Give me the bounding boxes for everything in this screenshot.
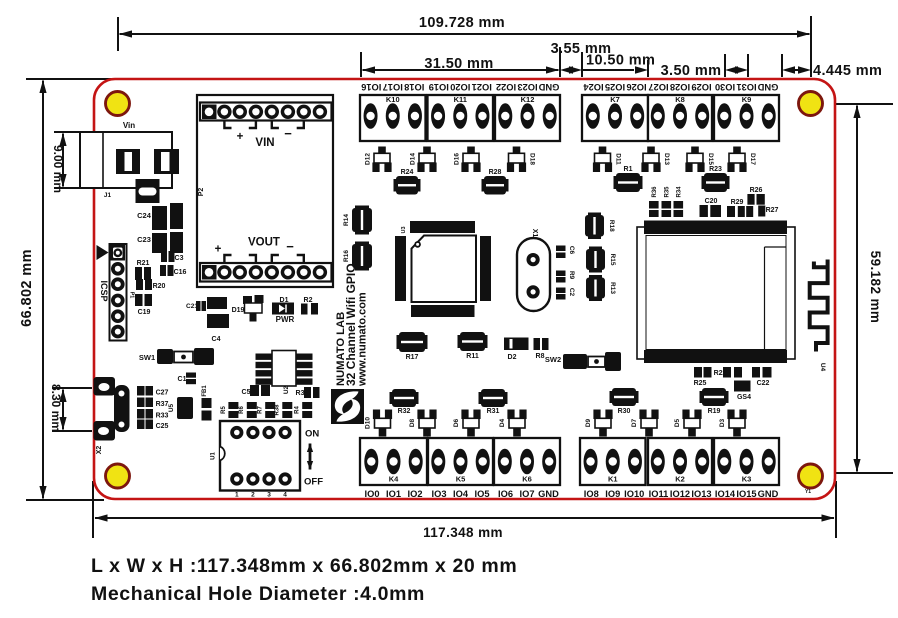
svg-text:R23: R23 bbox=[709, 166, 722, 173]
svg-text:IO6: IO6 bbox=[498, 489, 513, 499]
svg-text:IO27: IO27 bbox=[648, 82, 668, 92]
svg-text:K5: K5 bbox=[456, 475, 466, 484]
svg-text:IO11: IO11 bbox=[649, 489, 669, 499]
svg-text:66.802 mm: 66.802 mm bbox=[19, 249, 35, 327]
svg-text:VOUT: VOUT bbox=[248, 237, 280, 249]
svg-text:R34: R34 bbox=[677, 186, 683, 198]
svg-text:P2: P2 bbox=[198, 188, 205, 197]
svg-text:FB1: FB1 bbox=[202, 385, 208, 397]
svg-text:R18: R18 bbox=[608, 220, 615, 232]
svg-text:R33: R33 bbox=[156, 413, 169, 420]
svg-text:U5: U5 bbox=[168, 403, 175, 412]
svg-text:IO29: IO29 bbox=[691, 82, 711, 92]
svg-text:R37: R37 bbox=[156, 401, 169, 408]
svg-text:R8: R8 bbox=[536, 353, 545, 360]
svg-text:D5: D5 bbox=[674, 418, 681, 427]
svg-text:D2: D2 bbox=[508, 354, 517, 361]
svg-text:GND: GND bbox=[757, 82, 778, 92]
svg-text:C4: C4 bbox=[212, 336, 221, 343]
svg-text:R36: R36 bbox=[652, 186, 658, 198]
svg-text:IO2: IO2 bbox=[408, 489, 423, 499]
svg-text:R20: R20 bbox=[153, 283, 166, 290]
svg-text:IO24: IO24 bbox=[583, 82, 604, 92]
svg-text:GND: GND bbox=[538, 489, 559, 499]
svg-text:117.348 mm: 117.348 mm bbox=[423, 525, 503, 540]
svg-text:C5: C5 bbox=[242, 389, 251, 396]
svg-text:R25: R25 bbox=[694, 380, 707, 387]
svg-text:SW2: SW2 bbox=[545, 355, 561, 364]
svg-text:9.00 mm: 9.00 mm bbox=[51, 145, 65, 193]
svg-text:IO18: IO18 bbox=[404, 82, 424, 92]
svg-text:+: + bbox=[215, 244, 222, 256]
svg-text:109.728 mm: 109.728 mm bbox=[419, 15, 505, 31]
svg-text:R38: R38 bbox=[275, 404, 281, 416]
svg-text:C22: C22 bbox=[757, 380, 770, 387]
svg-text:D19: D19 bbox=[232, 307, 245, 314]
svg-text:IO10: IO10 bbox=[624, 489, 644, 499]
svg-text:R28: R28 bbox=[489, 169, 502, 176]
svg-text:C24: C24 bbox=[137, 211, 152, 220]
svg-text:R32: R32 bbox=[398, 408, 411, 415]
svg-text:IO13: IO13 bbox=[691, 489, 711, 499]
svg-text:IO19: IO19 bbox=[429, 82, 449, 92]
svg-text:SW1: SW1 bbox=[139, 353, 155, 362]
svg-text:K9: K9 bbox=[742, 95, 752, 104]
svg-text:R26: R26 bbox=[750, 187, 763, 194]
svg-text:R3: R3 bbox=[296, 390, 305, 397]
svg-text:U4: U4 bbox=[819, 363, 826, 372]
svg-text:R4: R4 bbox=[295, 406, 301, 414]
svg-text:3: 3 bbox=[267, 492, 271, 499]
svg-text:K8: K8 bbox=[675, 95, 685, 104]
svg-text:8.30 mm: 8.30 mm bbox=[49, 384, 63, 432]
svg-text:Mechanical Hole Diameter :4.0m: Mechanical Hole Diameter :4.0mm bbox=[91, 583, 425, 605]
svg-text:K2: K2 bbox=[675, 475, 685, 484]
svg-text:D6: D6 bbox=[453, 418, 460, 427]
svg-text:R14: R14 bbox=[343, 214, 350, 226]
svg-text:IO23: IO23 bbox=[517, 82, 537, 92]
svg-text:IO26: IO26 bbox=[626, 82, 646, 92]
svg-text:IO14: IO14 bbox=[715, 489, 736, 499]
svg-text:D4: D4 bbox=[499, 418, 506, 427]
svg-text:IO22: IO22 bbox=[496, 82, 516, 92]
svg-text:R13: R13 bbox=[609, 282, 616, 294]
svg-text:1: 1 bbox=[235, 492, 239, 499]
svg-text:3.50 mm: 3.50 mm bbox=[661, 63, 722, 79]
svg-text:2: 2 bbox=[251, 492, 255, 499]
svg-text:R1: R1 bbox=[624, 166, 633, 173]
svg-text:ICSP: ICSP bbox=[99, 280, 109, 301]
svg-text:IO17: IO17 bbox=[383, 82, 403, 92]
svg-text:R15: R15 bbox=[609, 254, 616, 266]
svg-text:C6: C6 bbox=[568, 246, 575, 255]
svg-text:ON: ON bbox=[305, 429, 319, 440]
svg-text:IO21: IO21 bbox=[472, 82, 492, 92]
svg-text:J1: J1 bbox=[104, 192, 112, 199]
svg-text:K11: K11 bbox=[454, 95, 467, 104]
svg-text:K4: K4 bbox=[389, 475, 399, 484]
svg-text:K10: K10 bbox=[386, 95, 400, 104]
svg-text:C1: C1 bbox=[178, 376, 187, 383]
svg-text:IO8: IO8 bbox=[584, 489, 599, 499]
svg-text:IO28: IO28 bbox=[670, 82, 690, 92]
svg-text:IO0: IO0 bbox=[365, 489, 380, 499]
svg-text:D10: D10 bbox=[365, 417, 372, 429]
svg-text:R5: R5 bbox=[221, 406, 227, 414]
svg-text:C23: C23 bbox=[137, 235, 151, 244]
svg-text:+: + bbox=[237, 131, 244, 143]
svg-text:K1: K1 bbox=[608, 475, 618, 484]
svg-text:OFF: OFF bbox=[304, 477, 323, 488]
svg-text:−: − bbox=[286, 239, 294, 254]
svg-text:D18: D18 bbox=[529, 153, 536, 165]
svg-text:IO9: IO9 bbox=[605, 489, 620, 499]
svg-text:R27: R27 bbox=[766, 207, 779, 214]
svg-text:C2: C2 bbox=[568, 288, 575, 297]
svg-text:R31: R31 bbox=[487, 408, 500, 415]
svg-text:X1: X1 bbox=[531, 229, 538, 238]
svg-text:IO16: IO16 bbox=[361, 82, 381, 92]
svg-text:Vin: Vin bbox=[123, 121, 135, 130]
svg-text:IO15: IO15 bbox=[736, 489, 756, 499]
svg-text:D14: D14 bbox=[410, 153, 417, 165]
svg-text:GND: GND bbox=[538, 82, 559, 92]
svg-text:R21: R21 bbox=[137, 260, 150, 267]
svg-text:U1: U1 bbox=[211, 452, 217, 460]
svg-text:R6: R6 bbox=[239, 406, 245, 414]
svg-text:D17: D17 bbox=[749, 153, 756, 165]
svg-text:C20: C20 bbox=[705, 198, 718, 205]
svg-text:IO30: IO30 bbox=[715, 82, 735, 92]
svg-text:4.445 mm: 4.445 mm bbox=[813, 63, 882, 79]
svg-text:U3: U3 bbox=[401, 226, 407, 233]
svg-text:C3: C3 bbox=[175, 255, 184, 262]
svg-text:D12: D12 bbox=[365, 153, 372, 165]
svg-text:C25: C25 bbox=[156, 423, 169, 430]
svg-text:R9: R9 bbox=[568, 271, 575, 280]
svg-text:K7: K7 bbox=[610, 95, 620, 104]
svg-text:Y1: Y1 bbox=[805, 489, 811, 495]
svg-text:D9: D9 bbox=[585, 418, 592, 427]
svg-text:R7: R7 bbox=[258, 406, 264, 414]
svg-text:www.numato.com: www.numato.com bbox=[357, 292, 369, 387]
svg-text:R11: R11 bbox=[466, 353, 479, 360]
svg-text:R2: R2 bbox=[304, 297, 313, 304]
svg-text:L x W x H :117.348mm x 66.802m: L x W x H :117.348mm x 66.802mm x 20 mm bbox=[91, 555, 517, 577]
svg-text:K3: K3 bbox=[742, 475, 752, 484]
svg-text:GS4: GS4 bbox=[737, 394, 751, 401]
svg-text:U2: U2 bbox=[283, 385, 290, 394]
svg-text:R17: R17 bbox=[406, 354, 419, 361]
svg-text:R16: R16 bbox=[343, 250, 350, 262]
svg-text:C27: C27 bbox=[156, 390, 169, 397]
svg-text:GND: GND bbox=[758, 489, 779, 499]
svg-text:VIN: VIN bbox=[255, 137, 274, 149]
svg-text:IO12: IO12 bbox=[670, 489, 690, 499]
svg-text:D11: D11 bbox=[615, 153, 622, 165]
svg-text:R35: R35 bbox=[665, 186, 671, 198]
svg-text:K12: K12 bbox=[521, 95, 535, 104]
svg-text:IO1: IO1 bbox=[386, 489, 401, 499]
svg-text:10.50 mm: 10.50 mm bbox=[586, 53, 655, 69]
svg-text:D7: D7 bbox=[631, 418, 638, 427]
svg-text:K6: K6 bbox=[522, 475, 532, 484]
svg-text:D13: D13 bbox=[663, 153, 670, 165]
svg-text:59.182 mm: 59.182 mm bbox=[868, 251, 883, 324]
svg-text:4: 4 bbox=[283, 492, 287, 499]
svg-text:D16: D16 bbox=[454, 153, 461, 165]
svg-text:IO31: IO31 bbox=[736, 82, 756, 92]
svg-text:PWR: PWR bbox=[276, 315, 295, 324]
svg-text:R19: R19 bbox=[708, 408, 721, 415]
svg-text:C16: C16 bbox=[174, 269, 187, 276]
svg-text:R24: R24 bbox=[401, 169, 414, 176]
svg-text:X2: X2 bbox=[96, 446, 103, 455]
svg-text:D8: D8 bbox=[409, 418, 416, 427]
svg-text:R22: R22 bbox=[714, 370, 727, 377]
svg-text:R30: R30 bbox=[618, 408, 631, 415]
svg-text:−: − bbox=[284, 126, 292, 141]
svg-text:IO5: IO5 bbox=[475, 489, 490, 499]
svg-text:IO25: IO25 bbox=[605, 82, 625, 92]
svg-text:R29: R29 bbox=[731, 199, 744, 206]
svg-text:D3: D3 bbox=[719, 418, 726, 427]
svg-text:D15: D15 bbox=[707, 153, 714, 165]
svg-text:IO3: IO3 bbox=[432, 489, 447, 499]
svg-text:C19: C19 bbox=[138, 309, 151, 316]
svg-text:31.50 mm: 31.50 mm bbox=[424, 56, 493, 72]
svg-text:IO4: IO4 bbox=[453, 489, 469, 499]
svg-text:IO20: IO20 bbox=[450, 82, 470, 92]
svg-text:IO7: IO7 bbox=[520, 489, 535, 499]
svg-text:P1: P1 bbox=[129, 292, 135, 299]
